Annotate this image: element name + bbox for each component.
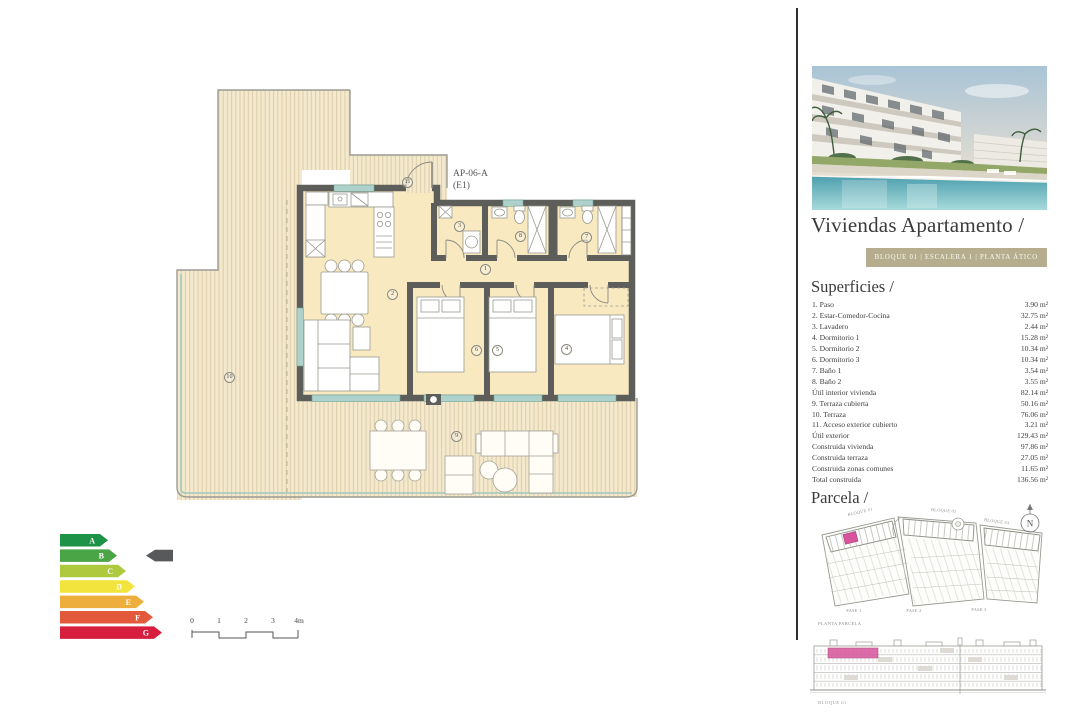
fase-label: FASE 2 [906,608,921,613]
scale-tick: 1 [217,616,221,625]
row-value: 10.34 m² [1021,356,1048,364]
room-marker: 8 [515,231,526,242]
row-label: Construida vivienda [812,443,873,451]
row-label: 8. Baño 2 [812,378,841,386]
scale-tick: 0 [190,616,194,625]
bloque-label: BLOQUE 02 [931,507,957,514]
energy-grade-letter: A [89,536,95,545]
superficies-row: 10. Terraza76.06 m² [812,411,1048,419]
row-value: 76.06 m² [1021,411,1048,419]
row-value: 136.56 m² [1017,476,1048,484]
room-marker: 7 [581,232,592,243]
scale-bar-rule [186,628,316,640]
room-marker: 10 [224,372,235,383]
row-label: 5. Dormitorio 2 [812,345,859,353]
unit-badge: BLOQUE 01 | ESCALERA 1 | PLANTA ÁTICO [866,248,1047,267]
room-marker: 9 [451,431,462,442]
room-marker: 2 [387,289,398,300]
row-value: 3.54 m² [1025,367,1048,375]
scale-bar: 0 1 2 3 4m [186,616,316,642]
elevation-caption: BLOQUE 01 [818,700,847,705]
row-value: 10.34 m² [1021,345,1048,353]
row-value: 97.86 m² [1021,443,1048,451]
room-marker: 5 [492,345,503,356]
row-label: Útil interior vivienda [812,389,876,397]
parcela-site-plan: N BLOQUE 01 BLOQUE 02 BLOQUE 03 FASE 1 F… [808,502,1048,632]
row-value: 3.55 m² [1025,378,1048,386]
parcela-caption: PLANTA PARCELA [818,621,862,626]
energy-grade-letter: E [126,598,131,607]
row-value: 11.65 m² [1021,465,1048,473]
superficies-heading: Superficies / [811,277,894,297]
superficies-row: 1. Paso3.90 m² [812,301,1048,309]
scale-tick: 2 [244,616,248,625]
superficies-row: 8. Baño 23.55 m² [812,378,1048,386]
content-divider [796,8,798,640]
room-marker: 3 [454,221,465,232]
scale-tick: 4m [294,616,304,625]
energy-grade-arrow [60,549,117,562]
dining-set [321,260,368,326]
room-marker: 1 [480,264,491,275]
row-label: 6. Dormitorio 3 [812,356,859,364]
energy-grade-arrow [60,596,144,609]
fase-label: FASE 3 [971,607,986,612]
energy-grade-letter: G [143,629,149,638]
bottom-wall-vent [426,394,441,405]
row-label: Construida terraza [812,454,868,462]
row-value: 2.44 m² [1025,323,1048,331]
page-title: Viviendas Apartamento / [811,213,1024,238]
bloque-label: BLOQUE 03 [984,517,1010,526]
unit-stair-label: (E1) [453,181,488,193]
row-value: 32.75 m² [1021,312,1048,320]
row-label: 10. Terraza [812,411,846,419]
row-label: 2. Estar-Comedor-Cocina [812,312,890,320]
row-label: Construida zonas comunes [812,465,893,473]
superficies-row: 7. Baño 13.54 m² [812,367,1048,375]
row-label: 7. Baño 1 [812,367,841,375]
row-label: 1. Paso [812,301,834,309]
energy-current-rating-arrow [146,550,173,562]
brochure-page: 1 2 3 4 5 6 7 8 9 10 11 AP-06-A (E1) A B… [0,0,1080,720]
unit-code: AP-06-A [453,169,488,181]
svg-text:N: N [1027,519,1034,529]
north-indicator: N [1021,504,1039,532]
row-label: 3. Lavadero [812,323,848,331]
superficies-row: Construida terraza27.05 m² [812,454,1048,462]
superficies-row: 6. Dormitorio 310.34 m² [812,356,1048,364]
room-marker: 11 [402,177,413,188]
fase-label: FASE 1 [846,608,861,613]
superficies-row: 9. Terraza cubierta50.16 m² [812,400,1048,408]
superficies-row: Construida zonas comunes11.65 m² [812,465,1048,473]
row-value: 3.90 m² [1025,301,1048,309]
unit-label: AP-06-A (E1) [453,169,488,193]
energy-grade-letter: D [116,583,122,592]
energy-grade-arrow [60,580,135,593]
row-value: 27.05 m² [1021,454,1048,462]
energy-grade-arrow [60,565,126,578]
row-value: 3.21 m² [1025,421,1048,429]
superficies-row: 3. Lavadero2.44 m² [812,323,1048,331]
row-value: 82.14 m² [1021,389,1048,397]
superficies-row: Total construida136.56 m² [812,476,1048,484]
superficies-row: Construida vivienda97.86 m² [812,443,1048,451]
energy-rating-label: A B C D E F G [60,534,192,644]
floor-plan [0,0,720,560]
superficies-row: 5. Dormitorio 210.34 m² [812,345,1048,353]
superficies-table: 1. Paso3.90 m² 2. Estar-Comedor-Cocina32… [812,301,1048,484]
scale-tick: 3 [271,616,275,625]
row-value: 50.16 m² [1021,400,1048,408]
superficies-row: Útil interior vivienda82.14 m² [812,389,1048,397]
building-elevation: BLOQUE 01 [808,632,1048,710]
row-value: 129.43 m² [1017,432,1048,440]
energy-grade-arrow [60,534,108,547]
superficies-row: 4. Dormitorio 115.28 m² [812,334,1048,342]
duct-shaft [622,206,631,255]
bloque-label: BLOQUE 01 [847,506,873,517]
superficies-row: Útil exterior129.43 m² [812,432,1048,440]
energy-grade-letter: F [135,613,140,622]
row-label: Útil exterior [812,432,849,440]
row-label: Total construida [812,476,861,484]
building-photo [812,66,1047,210]
superficies-row: 2. Estar-Comedor-Cocina32.75 m² [812,312,1048,320]
row-label: 11. Acceso exterior cubierto [812,421,897,429]
energy-grade-letter: C [107,567,113,576]
elevation-highlight-unit [828,648,878,658]
room-marker: 6 [471,345,482,356]
row-label: 9. Terraza cubierta [812,400,868,408]
energy-grade-letter: B [99,552,105,561]
row-label: 4. Dormitorio 1 [812,334,859,342]
room-marker: 4 [561,344,572,355]
superficies-row: 11. Acceso exterior cubierto3.21 m² [812,421,1048,429]
row-value: 15.28 m² [1021,334,1048,342]
